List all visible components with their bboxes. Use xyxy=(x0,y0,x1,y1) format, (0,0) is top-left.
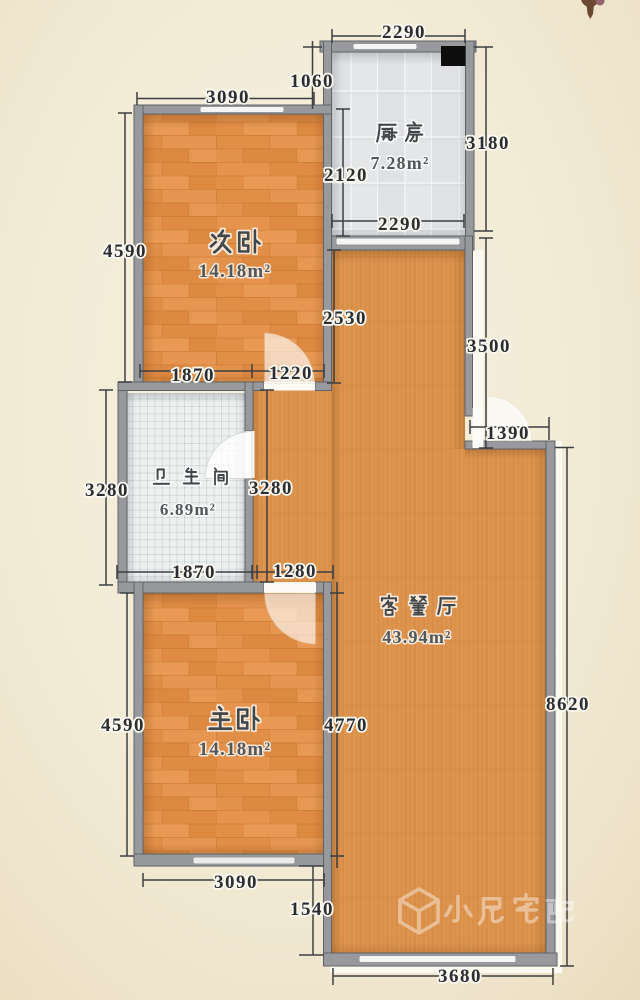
svg-text:2290: 2290 xyxy=(378,214,422,235)
svg-text:3500: 3500 xyxy=(467,336,511,357)
svg-text:4590: 4590 xyxy=(103,241,147,262)
svg-text:3280: 3280 xyxy=(85,480,129,501)
svg-text:1280: 1280 xyxy=(273,561,317,582)
svg-text:7.28m²: 7.28m² xyxy=(370,153,429,173)
svg-text:2290: 2290 xyxy=(382,22,426,43)
svg-text:1540: 1540 xyxy=(290,899,334,920)
svg-text:43.94m²: 43.94m² xyxy=(382,627,451,647)
svg-text:3180: 3180 xyxy=(466,133,510,154)
svg-text:4590: 4590 xyxy=(101,715,145,736)
svg-text:3090: 3090 xyxy=(214,872,258,893)
svg-text:3280: 3280 xyxy=(249,478,293,499)
svg-text:1870: 1870 xyxy=(171,365,215,386)
svg-text:1220: 1220 xyxy=(269,363,313,384)
svg-text:1060: 1060 xyxy=(290,71,334,92)
svg-text:3090: 3090 xyxy=(206,87,250,108)
svg-text:3680: 3680 xyxy=(438,966,482,987)
svg-text:14.18m²: 14.18m² xyxy=(199,261,272,282)
svg-text:8620: 8620 xyxy=(546,694,590,715)
svg-text:4770: 4770 xyxy=(324,715,368,736)
svg-text:6.89m²: 6.89m² xyxy=(160,500,216,519)
svg-text:2530: 2530 xyxy=(323,308,367,329)
svg-text:1390: 1390 xyxy=(486,423,530,444)
svg-text:2120: 2120 xyxy=(324,165,368,186)
svg-text:14.18m²: 14.18m² xyxy=(199,739,272,760)
svg-text:1870: 1870 xyxy=(172,562,216,583)
